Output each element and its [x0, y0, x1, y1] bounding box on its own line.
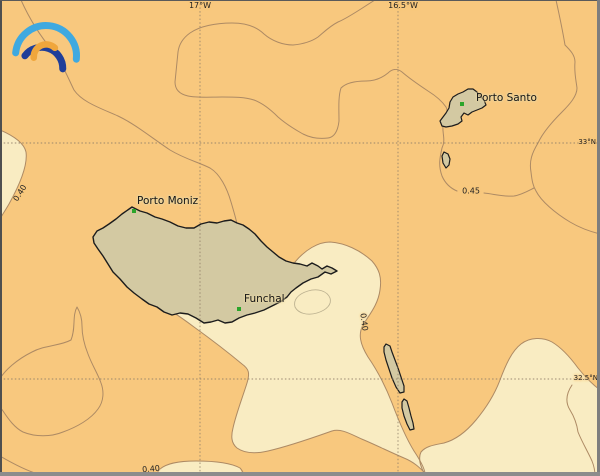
contour-label-045: 0.45 — [462, 187, 480, 196]
rainbow-arcs-logo — [15, 22, 80, 70]
meridian-label-17w: 17°W — [189, 1, 211, 10]
meridian-label-16-5w: 16.5°W — [388, 1, 418, 10]
funchal-label: Funchal — [244, 293, 285, 305]
porto-santo-label: Porto Santo — [476, 92, 537, 104]
frame-border-bottom — [0, 472, 600, 476]
porto-santo-marker — [460, 102, 464, 106]
parallel-label-32-5n: 32.5°N — [574, 374, 598, 382]
frame-border-left — [0, 0, 2, 476]
porto-moniz-label: Porto Moniz — [137, 195, 198, 207]
funchal-marker — [237, 307, 241, 311]
sea-light-regions — [0, 130, 600, 476]
map-graphics — [0, 0, 600, 476]
porto-santo-islet — [442, 152, 450, 168]
frame-border-top — [0, 0, 600, 1]
porto-moniz-marker — [132, 209, 136, 213]
desertas-island-south — [402, 399, 414, 430]
desertas-island-north — [384, 344, 404, 393]
parallel-label-33n: 33°N — [578, 138, 596, 146]
logo-middle-arc — [24, 46, 65, 69]
map-canvas: 17°W 16.5°W 33°N 32.5°N Porto Moniz Func… — [0, 0, 600, 476]
